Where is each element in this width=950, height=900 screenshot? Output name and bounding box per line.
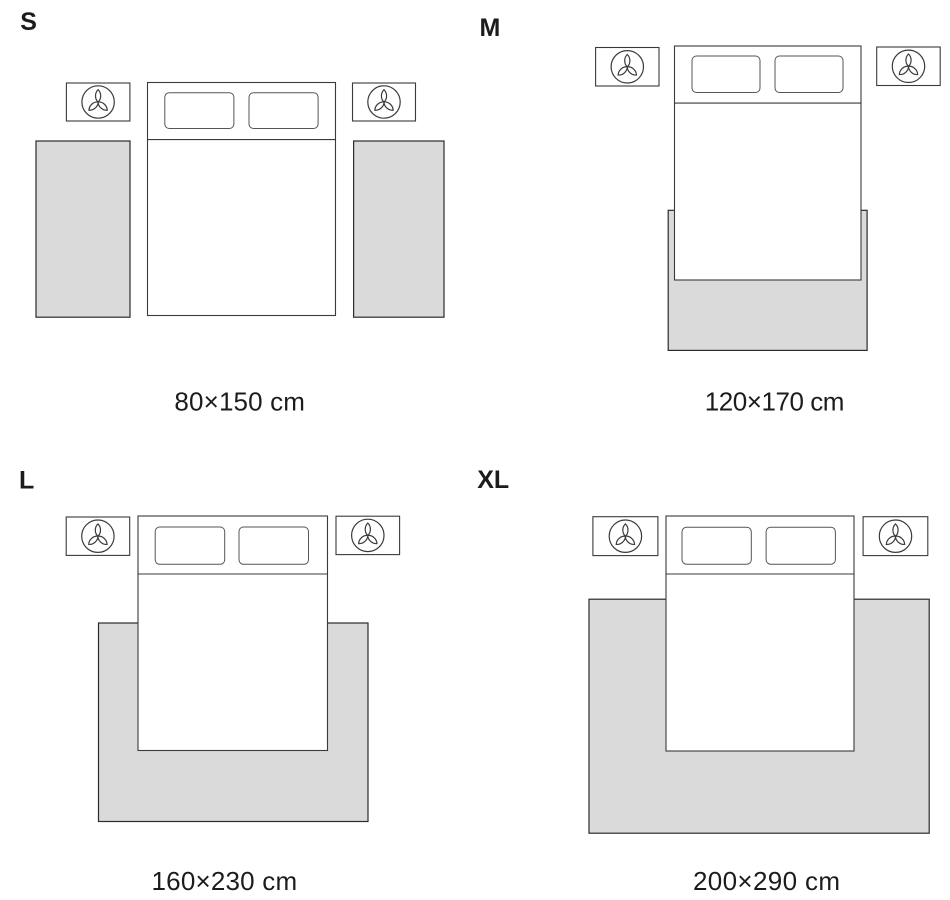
svg-text:80×150 cm: 80×150 cm bbox=[174, 387, 305, 417]
svg-text:120×170 cm: 120×170 cm bbox=[705, 387, 844, 417]
svg-text:M: M bbox=[480, 14, 501, 42]
svg-text:L: L bbox=[19, 467, 34, 495]
svg-text:160×230 cm: 160×230 cm bbox=[152, 866, 298, 896]
svg-text:S: S bbox=[20, 8, 37, 36]
svg-text:XL: XL bbox=[477, 466, 509, 494]
svg-text:200×290 cm: 200×290 cm bbox=[693, 866, 840, 896]
